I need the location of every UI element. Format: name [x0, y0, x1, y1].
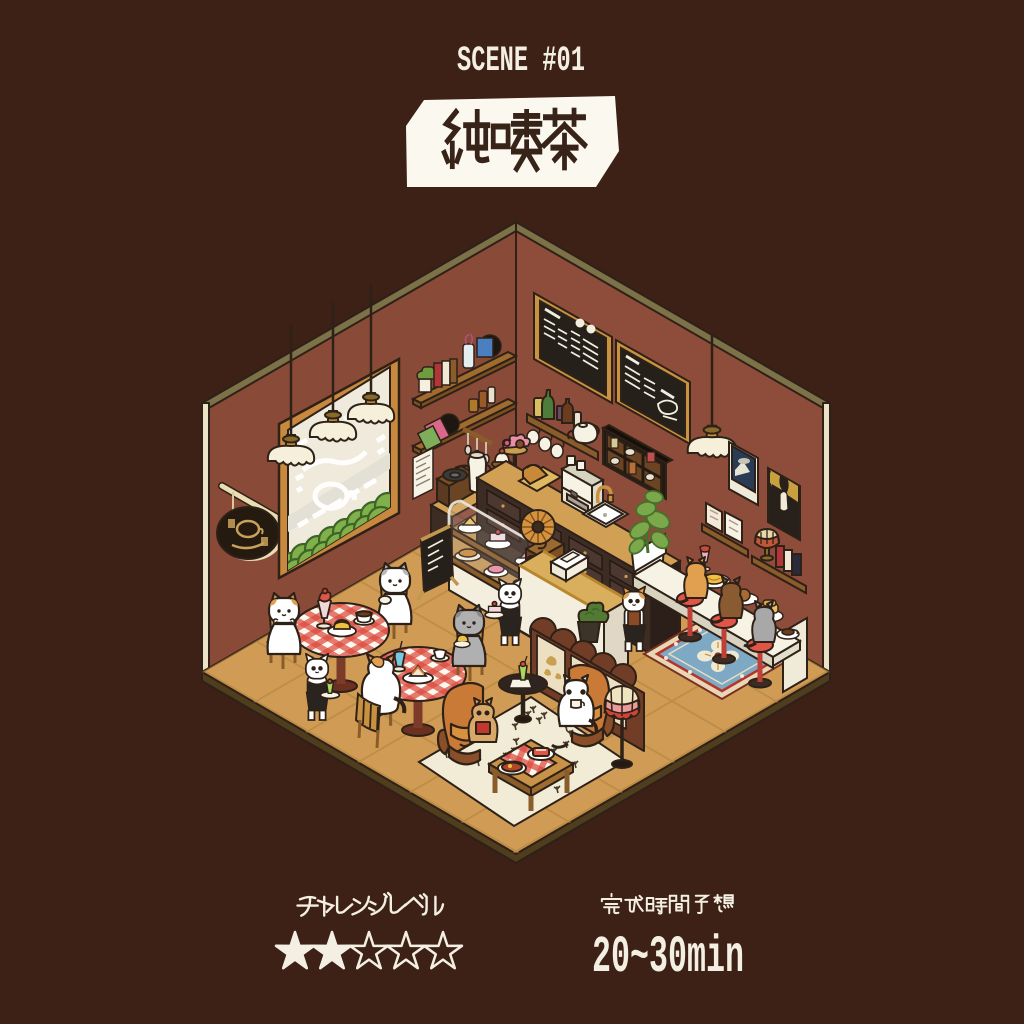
svg-text:SCENE #01: SCENE #01 — [457, 41, 585, 81]
svg-text:20~30min: 20~30min — [592, 928, 744, 987]
